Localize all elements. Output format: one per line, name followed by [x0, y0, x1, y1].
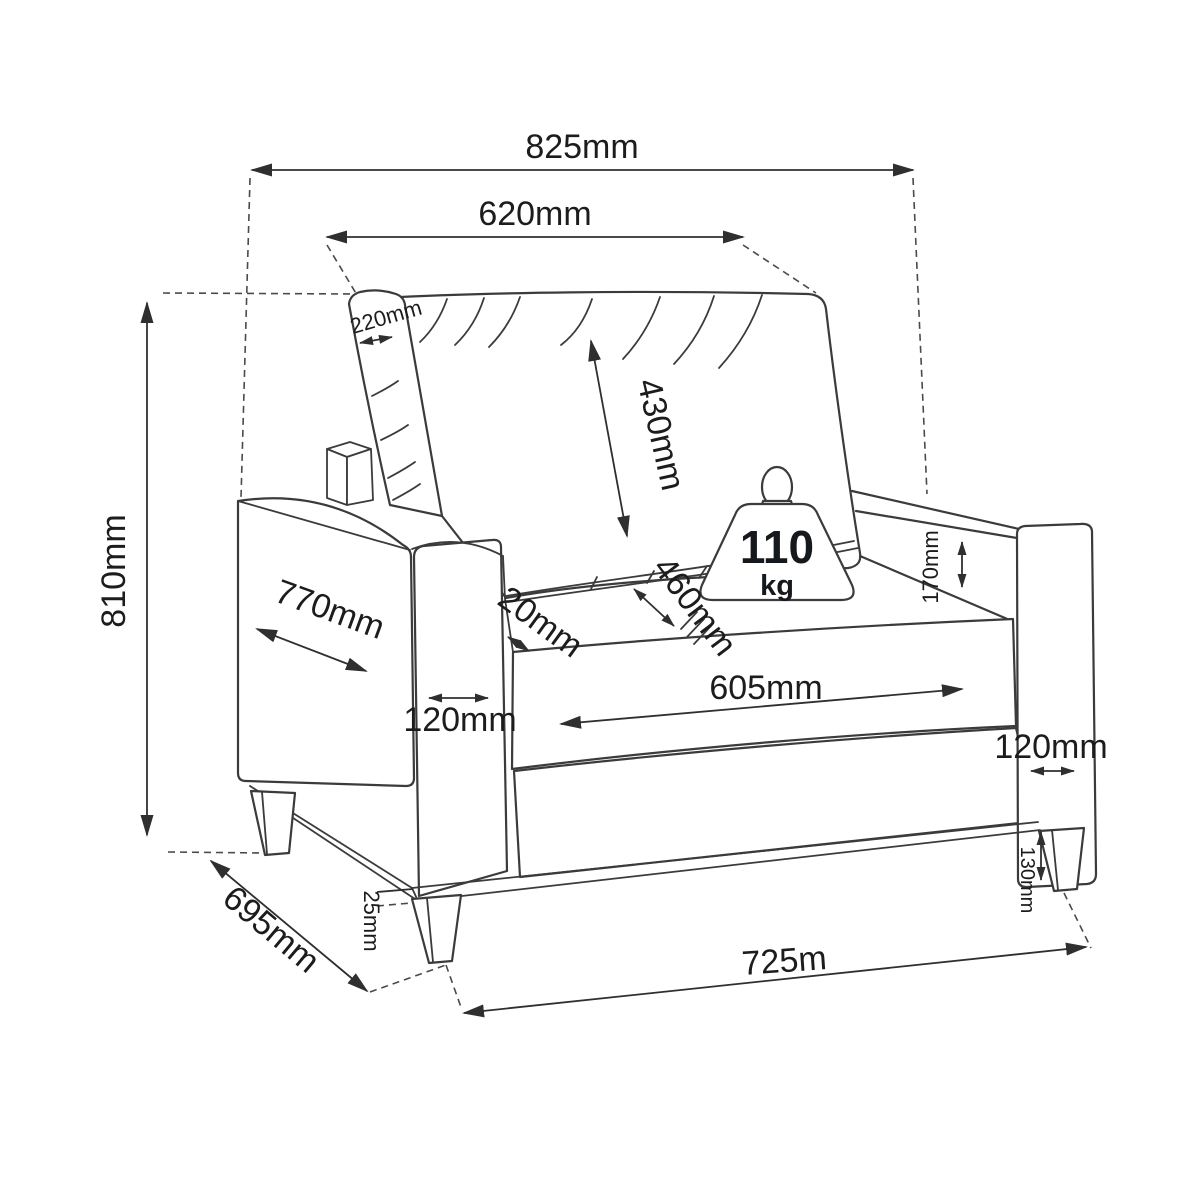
dim-left-armrest-width-label: 120mm — [403, 701, 516, 739]
weight-value-label: 110 — [740, 521, 814, 573]
dim-backrest-above-armrest: 170mm — [918, 530, 962, 603]
ext-leg-to-725 — [446, 965, 462, 1010]
front-left-leg — [412, 895, 461, 963]
dim-front-width: 725m — [464, 939, 1086, 1013]
dim-base-rail-thickness: 25mm — [359, 890, 384, 951]
dim-right-armrest-width-label: 120mm — [994, 728, 1107, 766]
ext-height-bottom — [168, 852, 264, 853]
dim-backrest-width-label: 620mm — [478, 195, 591, 233]
dim-overall-width: 825mm — [252, 128, 913, 170]
ext-695-to-leg — [370, 965, 446, 992]
dim-seat-width-label: 605mm — [709, 669, 822, 707]
frame-block — [327, 442, 373, 505]
dim-overall-height: 810mm — [95, 303, 147, 835]
armchair-dimension-drawing: 110 kg 825mm 620mm 220mm — [0, 0, 1200, 1200]
weight-unit-label: kg — [760, 570, 794, 602]
ext-height-top — [163, 293, 357, 294]
dim-left-armrest-width: 120mm — [403, 698, 516, 739]
ext-620-right — [743, 245, 816, 293]
dim-backrest-width: 620mm — [327, 195, 743, 237]
rear-left-leg — [251, 791, 295, 855]
dim-overall-depth: 695mm — [211, 861, 367, 991]
frame-block-side — [347, 449, 373, 505]
dim-base-rail-thickness-label: 25mm — [359, 890, 384, 951]
ext-825-right — [913, 178, 927, 494]
dim-backrest-above-armrest-label: 170mm — [918, 530, 943, 603]
ext-825-left — [241, 178, 250, 498]
dim-overall-height-label: 810mm — [95, 514, 133, 627]
frame-block-front — [327, 449, 347, 505]
dim-overall-width-label: 825mm — [525, 128, 638, 166]
dim-leg-height-label: 130mm — [1016, 847, 1038, 914]
ext-right-leg-to-725 — [1064, 893, 1091, 948]
dim-overall-depth-label: 695mm — [215, 879, 326, 981]
ext-620-left — [327, 245, 357, 295]
diagram-canvas: 110 kg 825mm 620mm 220mm — [0, 0, 1200, 1200]
left-armrest-outer-face — [238, 498, 414, 786]
dim-right-armrest-width: 120mm — [994, 728, 1107, 771]
dim-front-width-label: 725m — [740, 939, 828, 983]
